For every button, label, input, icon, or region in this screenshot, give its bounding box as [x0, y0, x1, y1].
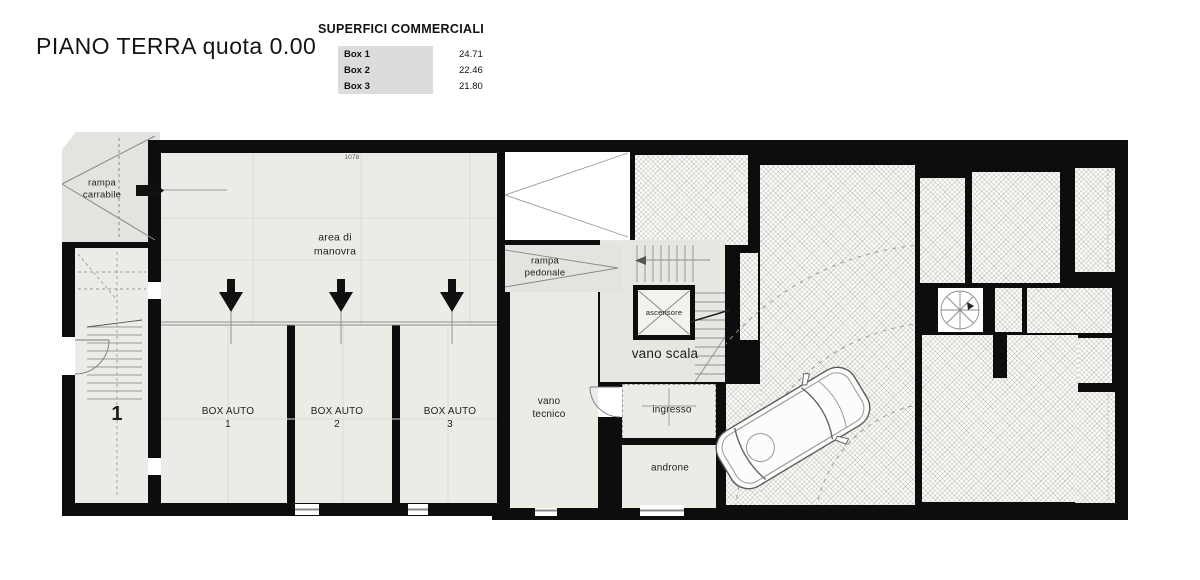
label-dimension: 1078 [344, 154, 359, 162]
label-ascensore: ascensore [646, 308, 682, 318]
label-vano-scala: vano scala [632, 345, 699, 363]
label-vano-tecnico: vano tecnico [532, 395, 565, 421]
label-unit-number: 1 [111, 401, 122, 427]
legend-label: Box 3 [338, 78, 433, 94]
drive-arrow-icon [136, 179, 164, 202]
label-box-auto-3: BOX AUTO 3 [424, 405, 477, 431]
label-androne: androne [651, 462, 689, 475]
spiral-stair-arrow [967, 302, 974, 310]
floor-plan: rampa carrabile 1078 area di manovra BOX… [62, 132, 1128, 522]
legend-header: SUPERFICI COMMERCIALI [318, 22, 484, 36]
page-title: PIANO TERRA quota 0.00 [36, 33, 316, 60]
legend-row: Box 2 22.46 [338, 62, 508, 78]
garage-arrow-icons [219, 279, 464, 312]
legend-value: 22.46 [459, 65, 483, 76]
floor-plan-page: PIANO TERRA quota 0.00 SUPERFICI COMMERC… [0, 0, 1200, 580]
label-rampa-carrabile: rampa carrabile [83, 178, 121, 203]
label-ingresso: ingresso [652, 404, 691, 417]
label-rampa-pedonale: rampa pedonale [525, 256, 566, 281]
legend-value: 24.71 [459, 49, 483, 60]
legend-row: Box 3 21.80 [338, 78, 508, 94]
turning-radius-arcs [656, 244, 1128, 522]
legend-row: Box 1 24.71 [338, 46, 508, 62]
label-box-auto-1: BOX AUTO 1 [202, 405, 255, 431]
spiral-stair-icon [941, 291, 979, 329]
legend-label: Box 2 [338, 62, 433, 78]
car-icon [704, 352, 882, 504]
label-area-manovra: area di manovra [314, 231, 356, 258]
legend-value: 21.80 [459, 81, 483, 92]
plan-linework [62, 132, 1128, 522]
label-box-auto-2: BOX AUTO 2 [311, 405, 364, 431]
legend-label: Box 1 [338, 46, 433, 62]
legend-table: Box 1 24.71 Box 2 22.46 Box 3 21.80 [338, 46, 508, 94]
